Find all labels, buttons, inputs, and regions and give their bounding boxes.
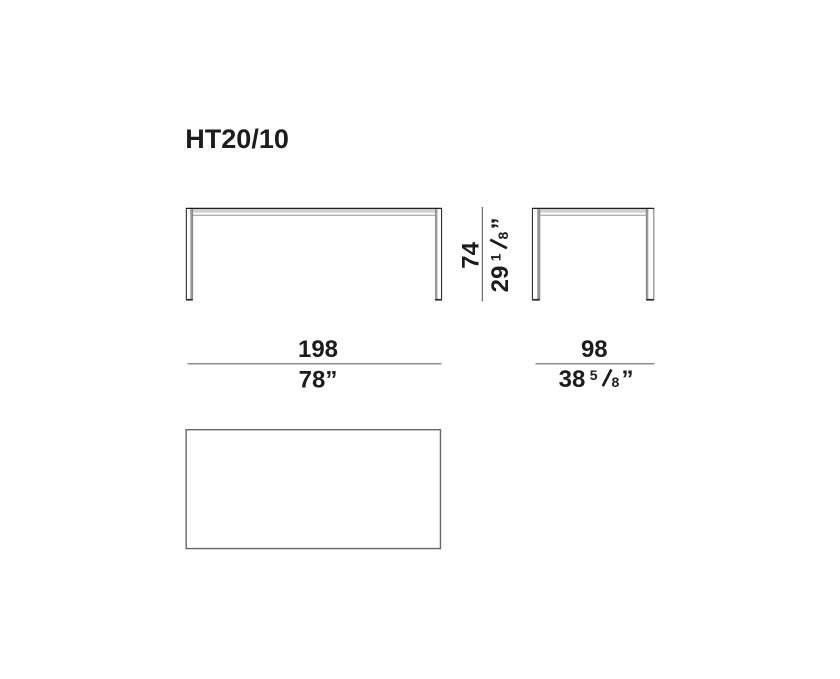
svg-text:74: 74 (458, 241, 485, 268)
svg-text:1: 1 (488, 253, 504, 261)
svg-text:”: ” (622, 366, 634, 393)
svg-text:HT20/10: HT20/10 (185, 124, 289, 154)
svg-text:38: 38 (559, 366, 586, 393)
svg-text:98: 98 (581, 336, 608, 363)
svg-text:8: 8 (495, 231, 511, 239)
svg-text:5: 5 (590, 367, 598, 383)
svg-text:8: 8 (612, 374, 620, 390)
svg-text:”: ” (487, 217, 514, 229)
svg-text:29: 29 (487, 266, 514, 293)
svg-text:78”: 78” (299, 367, 338, 394)
svg-text:198: 198 (298, 336, 338, 363)
